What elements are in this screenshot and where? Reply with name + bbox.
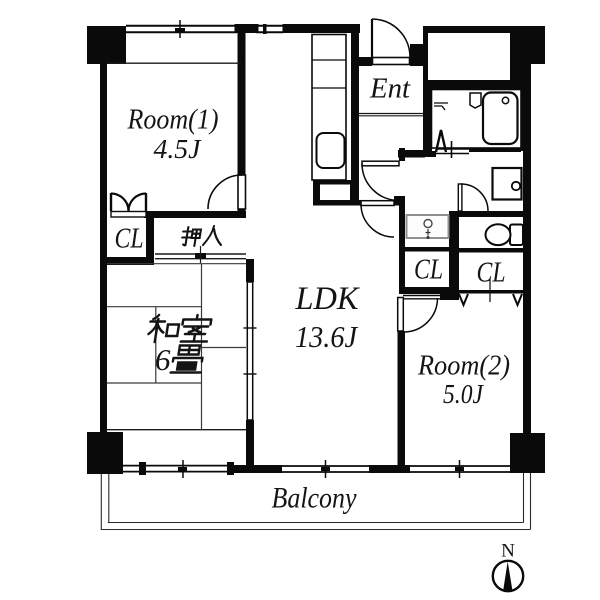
svg-text:5.0J: 5.0J — [443, 379, 485, 409]
svg-text:Room(1): Room(1) — [127, 105, 219, 136]
svg-text:CL: CL — [115, 224, 144, 255]
svg-text:4.5J: 4.5J — [154, 134, 203, 164]
svg-text:6: 6 — [155, 342, 171, 377]
svg-text:CL: CL — [477, 258, 506, 289]
svg-text:N: N — [501, 541, 515, 562]
svg-text:Room(2): Room(2) — [417, 350, 510, 382]
svg-text:CL: CL — [414, 255, 443, 286]
svg-text:LDK: LDK — [295, 281, 361, 317]
svg-text:Ent: Ent — [369, 73, 411, 105]
svg-text:13.6J: 13.6J — [295, 319, 358, 354]
svg-text:Balcony: Balcony — [272, 482, 358, 515]
